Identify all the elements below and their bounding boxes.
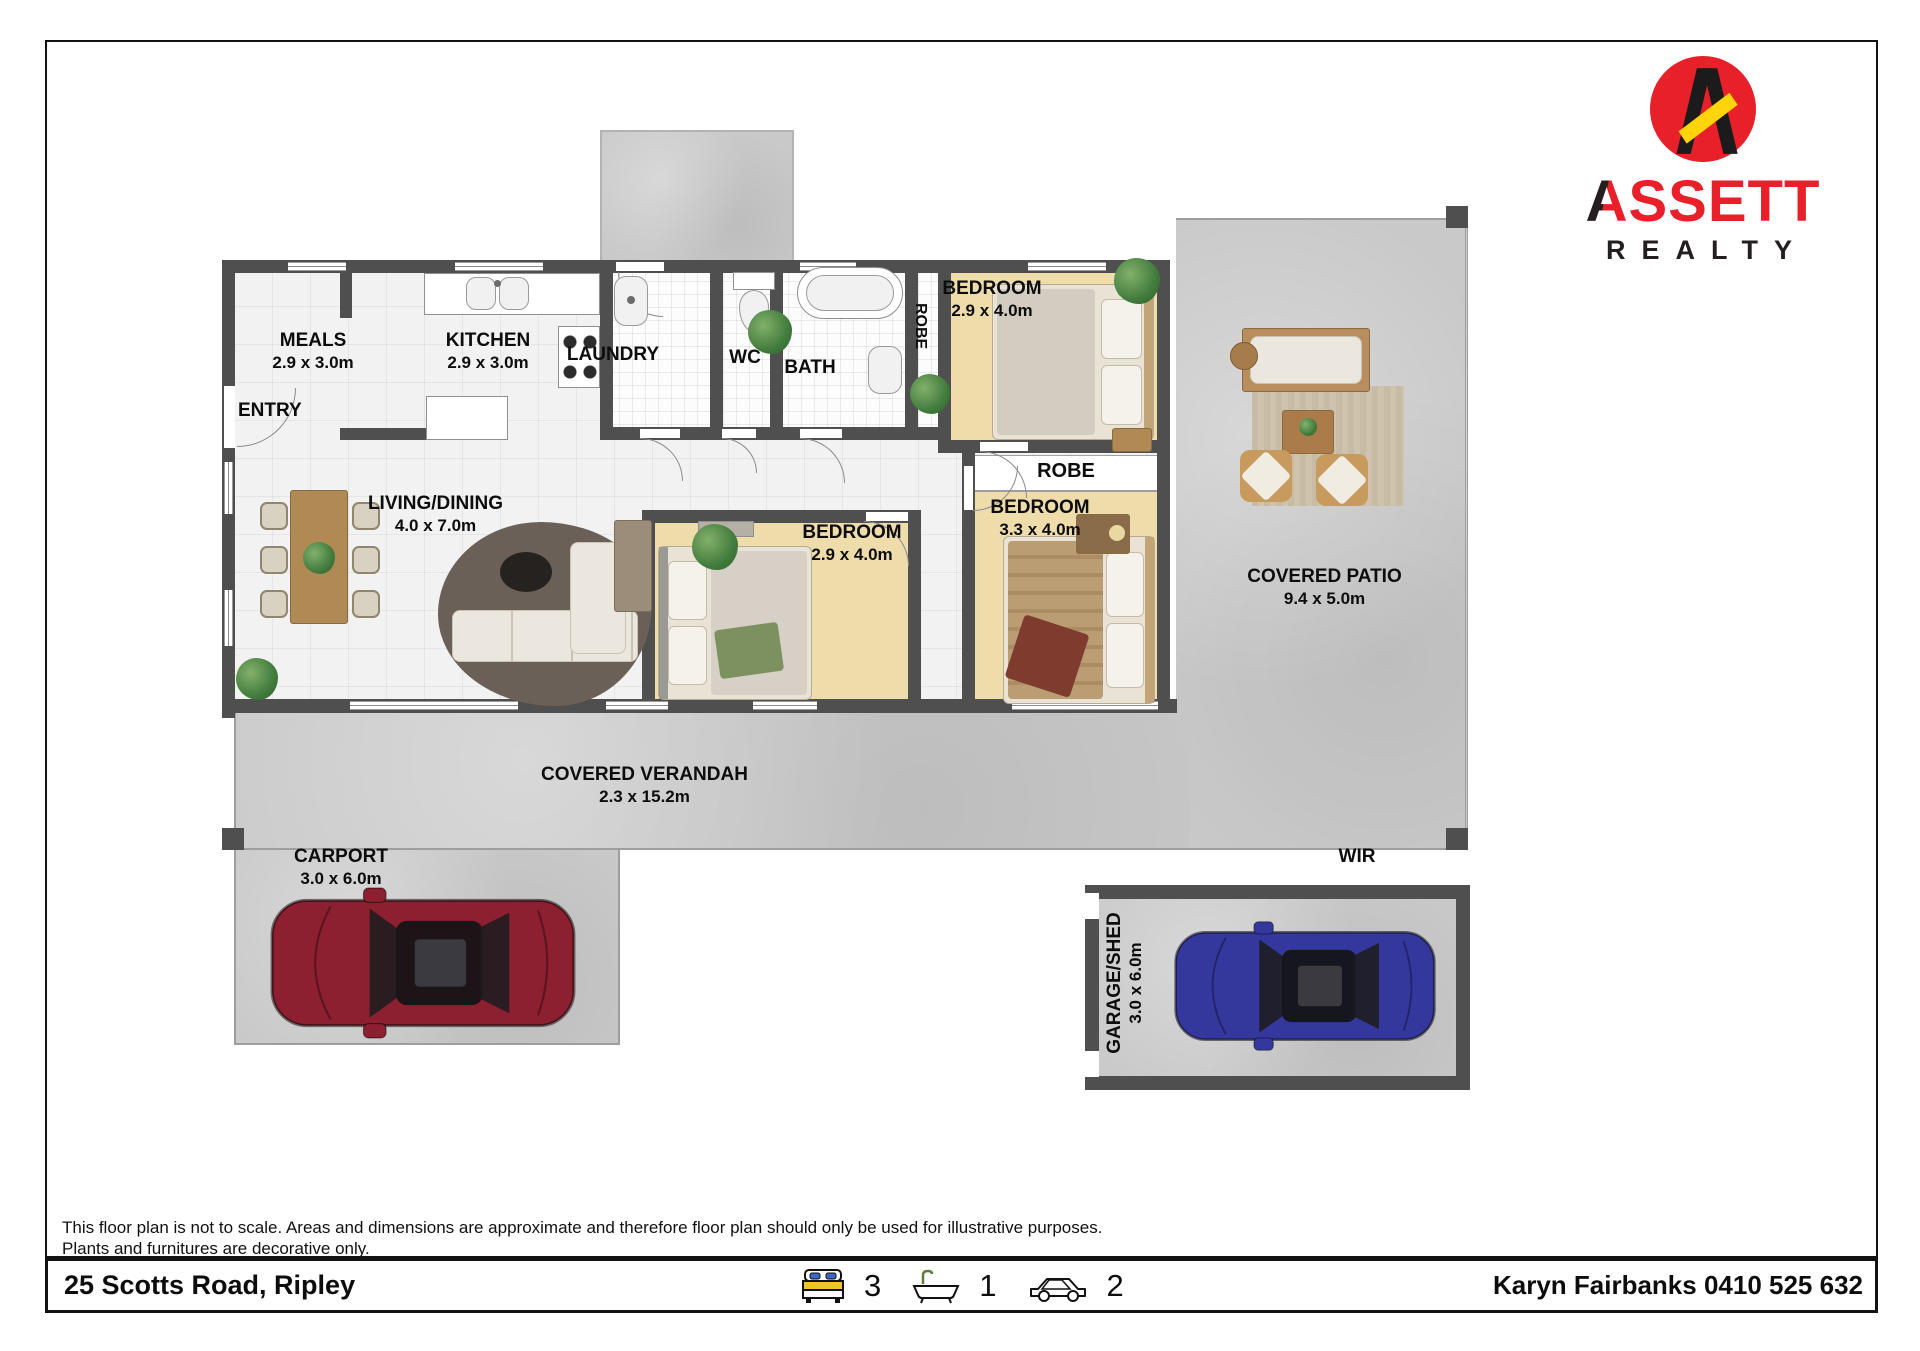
window xyxy=(1028,262,1106,271)
plant xyxy=(692,524,738,570)
cars-count: 2 xyxy=(1107,1268,1124,1304)
kitchen-island xyxy=(426,396,508,440)
plant xyxy=(1114,258,1160,304)
coffee-table xyxy=(500,552,552,592)
beds-count: 3 xyxy=(864,1268,881,1304)
table-plant xyxy=(303,542,335,574)
dining-chair xyxy=(260,502,288,530)
disclaimer-text: This floor plan is not to scale. Areas a… xyxy=(62,1217,1462,1259)
kitchen-sink xyxy=(499,277,529,310)
bath-basin xyxy=(868,346,902,394)
lamp xyxy=(1109,525,1125,541)
door-opening xyxy=(866,512,908,521)
door-opening xyxy=(640,429,680,438)
room-label-robe2: ROBE xyxy=(975,460,1157,482)
wall-segment xyxy=(340,428,435,440)
door-opening xyxy=(964,466,973,510)
window xyxy=(224,462,233,514)
patio-post xyxy=(1446,828,1468,850)
property-address: 25 Scotts Road, Ripley xyxy=(48,1270,355,1301)
bed-headboard xyxy=(1144,285,1153,439)
patio-chair xyxy=(1240,450,1292,502)
wall-segment xyxy=(1157,260,1170,713)
garage-door-jamb xyxy=(1085,1051,1099,1077)
patio-chair xyxy=(1316,454,1368,506)
agent-contact: Karyn Fairbanks 0410 525 632 xyxy=(1493,1270,1875,1301)
toilet-cistern xyxy=(733,272,775,290)
bed-headboard xyxy=(1145,537,1154,703)
address-bar: 25 Scotts Road, Ripley 3 xyxy=(45,1258,1878,1313)
floor-plan: MEALS2.9 x 3.0m KITCHEN2.9 x 3.0m LAUNDR… xyxy=(0,0,1920,1351)
bed-pillow xyxy=(1106,623,1144,688)
window xyxy=(455,262,543,271)
room-label-living: LIVING/DINING4.0 x 7.0m xyxy=(358,493,513,537)
garage-door-jamb xyxy=(1085,893,1099,919)
property-stats: 3 1 2 xyxy=(800,1261,1124,1310)
patio-sofa-cushions xyxy=(1250,336,1362,384)
dining-chair xyxy=(352,546,380,574)
bath-icon xyxy=(911,1268,961,1304)
nightstand xyxy=(1112,428,1152,452)
bed-pillow xyxy=(668,626,706,686)
sliding-door xyxy=(606,701,668,710)
door-opening xyxy=(722,429,756,438)
verandah-post xyxy=(222,828,244,850)
dining-chair xyxy=(352,590,380,618)
room-label-bedroom1: BEDROOM2.9 x 4.0m xyxy=(926,278,1058,322)
sliding-door xyxy=(350,701,518,710)
red-car-illustration xyxy=(268,886,578,1040)
bed-pillow xyxy=(668,561,706,621)
patio-table-plant xyxy=(1299,418,1317,436)
bed-pillow xyxy=(1101,299,1141,360)
dining-chair xyxy=(260,546,288,574)
kitchen-sink xyxy=(466,277,496,310)
door-opening xyxy=(616,262,664,271)
window xyxy=(288,262,346,271)
room-label-carport: CARPORT3.0 x 6.0m xyxy=(285,846,397,890)
bed-headboard xyxy=(659,547,668,699)
room-label-meals: MEALS2.9 x 3.0m xyxy=(248,330,378,374)
covered-patio-area xyxy=(1176,218,1468,850)
bathtub-inner xyxy=(806,275,894,311)
patio-post xyxy=(1446,206,1468,228)
bed-throw xyxy=(714,622,784,679)
door-opening xyxy=(800,429,842,438)
room-label-laundry: LAUNDRY xyxy=(563,344,663,366)
bed-illustration-bedroom3 xyxy=(1003,536,1155,704)
sink-tap xyxy=(494,280,501,287)
dining-chair xyxy=(260,590,288,618)
floorplan-page: ASSETT REALTY xyxy=(0,0,1920,1351)
baths-stat: 1 xyxy=(911,1268,996,1304)
wall-segment xyxy=(710,260,723,440)
room-label-bedroom3: BEDROOM3.3 x 4.0m xyxy=(978,497,1102,541)
sliding-door xyxy=(753,701,817,710)
disclaimer-line1: This floor plan is not to scale. Areas a… xyxy=(62,1217,1462,1238)
room-label-verandah: COVERED VERANDAH2.3 x 15.2m xyxy=(532,764,757,808)
room-label-bedroom2: BEDROOM2.9 x 4.0m xyxy=(788,522,916,566)
room-label-wir: WIR xyxy=(1317,846,1397,868)
patio-side-table xyxy=(1230,342,1258,370)
plant xyxy=(236,658,278,700)
cars-stat: 2 xyxy=(1027,1268,1124,1304)
room-label-patio: COVERED PATIO9.4 x 5.0m xyxy=(1242,566,1407,610)
media-console xyxy=(614,520,652,612)
room-label-garage: GARAGE/SHED3.0 x 6.0m xyxy=(1104,898,1146,1068)
room-label-bath: BATH xyxy=(778,357,842,379)
bed-illustration-bedroom2 xyxy=(658,546,812,700)
entry-opening xyxy=(224,386,235,448)
laundry-drain xyxy=(627,296,635,304)
room-label-wc: WC xyxy=(723,347,767,369)
bed-pillow xyxy=(1106,552,1144,617)
baths-count: 1 xyxy=(979,1268,996,1304)
porch-slab xyxy=(600,130,794,266)
room-label-entry: ENTRY xyxy=(238,400,322,422)
room-label-kitchen: KITCHEN2.9 x 3.0m xyxy=(423,330,553,374)
bed-icon xyxy=(800,1268,846,1304)
bed-pillow xyxy=(1101,365,1141,426)
window xyxy=(224,590,233,646)
blue-car-illustration xyxy=(1162,920,1448,1052)
plant xyxy=(910,374,950,414)
beds-stat: 3 xyxy=(800,1268,881,1304)
door-opening xyxy=(980,442,1028,451)
car-icon xyxy=(1027,1269,1089,1303)
disclaimer-line2: Plants and furnitures are decorative onl… xyxy=(62,1238,1462,1259)
